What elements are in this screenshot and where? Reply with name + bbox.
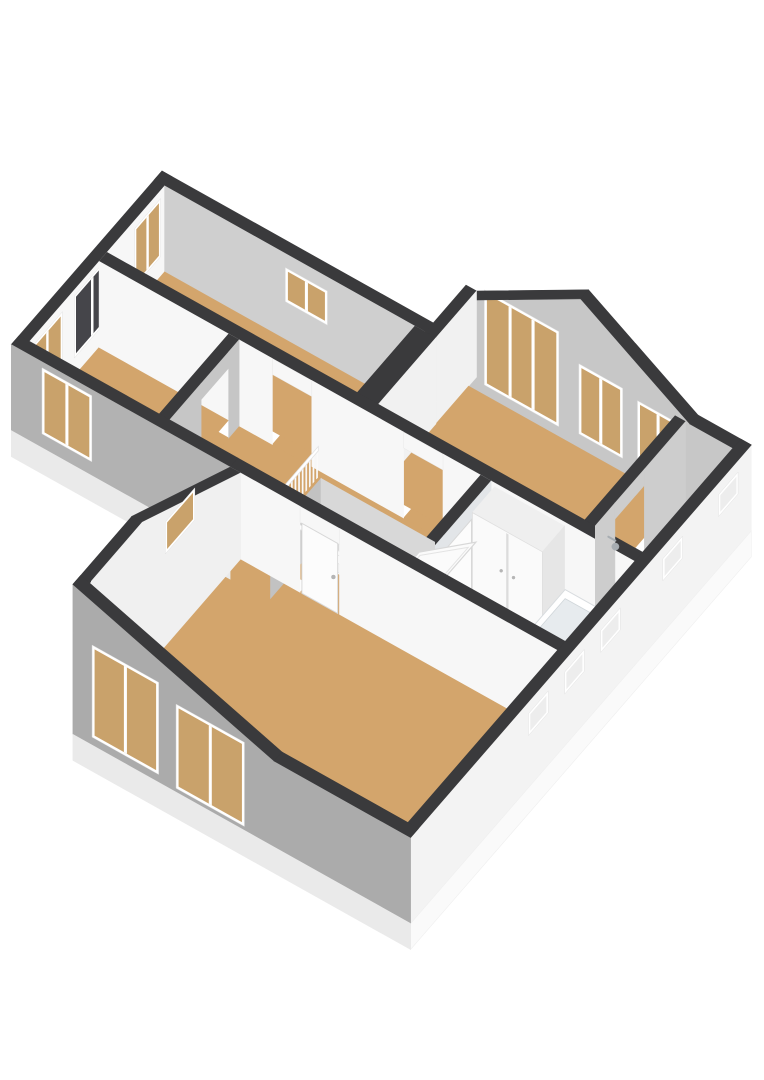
window-mullion — [600, 379, 603, 444]
stair-railing-picket — [302, 468, 303, 495]
stair-railing-picket — [306, 464, 307, 492]
closet-knob — [500, 569, 503, 572]
door-knob — [331, 575, 335, 579]
floorplan-3d-canvas[interactable] — [0, 0, 764, 1080]
wall-cap — [469, 290, 589, 300]
window-mullion — [305, 282, 307, 311]
closet-doors — [507, 534, 509, 613]
window-mullion — [66, 384, 68, 445]
stair-railing-picket — [316, 452, 317, 479]
stair-railing-picket — [309, 460, 310, 487]
closet-knob — [512, 576, 515, 579]
window-mullion — [91, 278, 93, 336]
interior-wall — [229, 340, 239, 438]
window-mullion — [532, 320, 535, 410]
window-mullion — [509, 307, 511, 397]
floorplan-viewport — [0, 0, 764, 1080]
stair-railing-picket — [313, 456, 314, 484]
window-mullion — [124, 666, 126, 753]
window-mullion — [209, 726, 211, 805]
shower-head-icon — [612, 543, 619, 550]
window-mullion — [147, 216, 149, 270]
